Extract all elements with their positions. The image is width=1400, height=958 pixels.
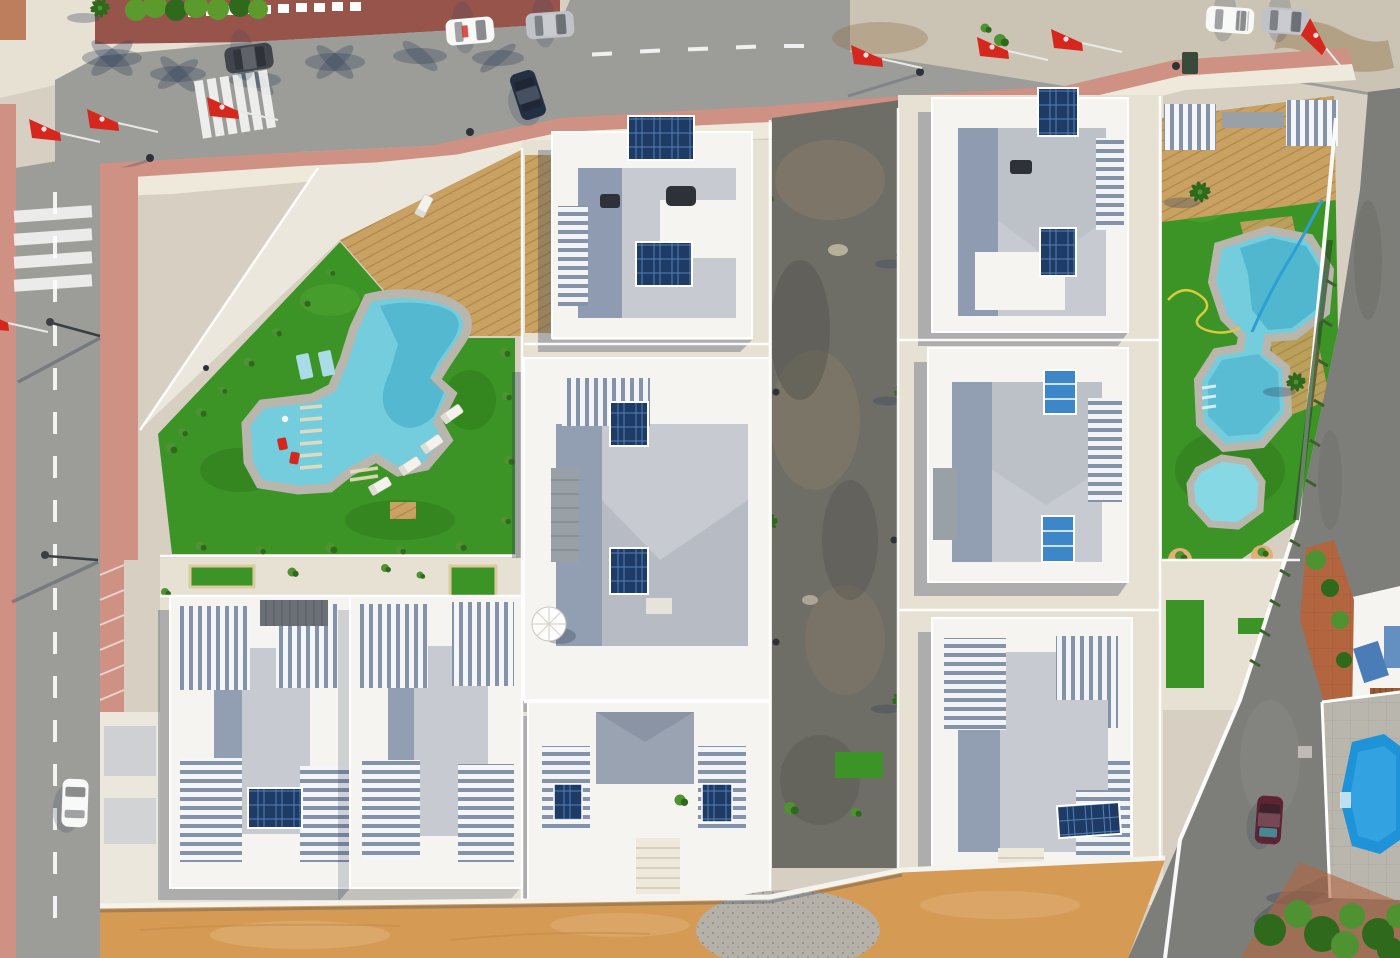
solar-panels <box>554 784 582 820</box>
stone-feature-wall <box>551 468 579 562</box>
aerial-photo-canvas <box>0 0 1400 958</box>
solar-panels <box>248 788 302 828</box>
stone-feature-wall <box>933 468 957 540</box>
villa-r2 <box>914 348 1128 596</box>
corner-neighbor-pool <box>1322 692 1400 900</box>
villa-r1 <box>918 88 1128 346</box>
waste-bin <box>1182 52 1198 74</box>
ac-unit <box>666 186 696 206</box>
blue-sun-loungers <box>1042 516 1074 562</box>
entry-canopy <box>260 600 328 626</box>
solar-panels <box>1057 802 1121 838</box>
villa-c1 <box>538 116 752 352</box>
ac-unit <box>600 194 620 208</box>
starfish <box>282 416 288 422</box>
villa-c2 <box>512 358 770 712</box>
solar-panels <box>628 116 694 160</box>
pergola <box>558 206 588 306</box>
villa-sw1 <box>158 596 352 900</box>
villa-c3 <box>516 702 770 910</box>
pergola <box>1096 138 1124 230</box>
pergola <box>1088 398 1122 502</box>
solar-panels <box>702 784 732 822</box>
outdoor-table <box>646 598 672 614</box>
solar-panels <box>1040 228 1076 276</box>
solar-panels <box>610 402 648 446</box>
blue-sun-loungers <box>1044 370 1076 414</box>
scene-svg <box>0 0 1400 958</box>
solar-panels <box>1038 88 1078 136</box>
left-road <box>0 104 160 958</box>
planter-bench <box>1222 112 1284 128</box>
ac-unit <box>1010 160 1032 174</box>
octagonal-spa <box>1190 458 1262 526</box>
solar-panels <box>610 548 648 594</box>
wood-pallet <box>390 502 416 519</box>
no-parking-hatch <box>100 560 124 712</box>
solar-panels <box>636 242 692 286</box>
